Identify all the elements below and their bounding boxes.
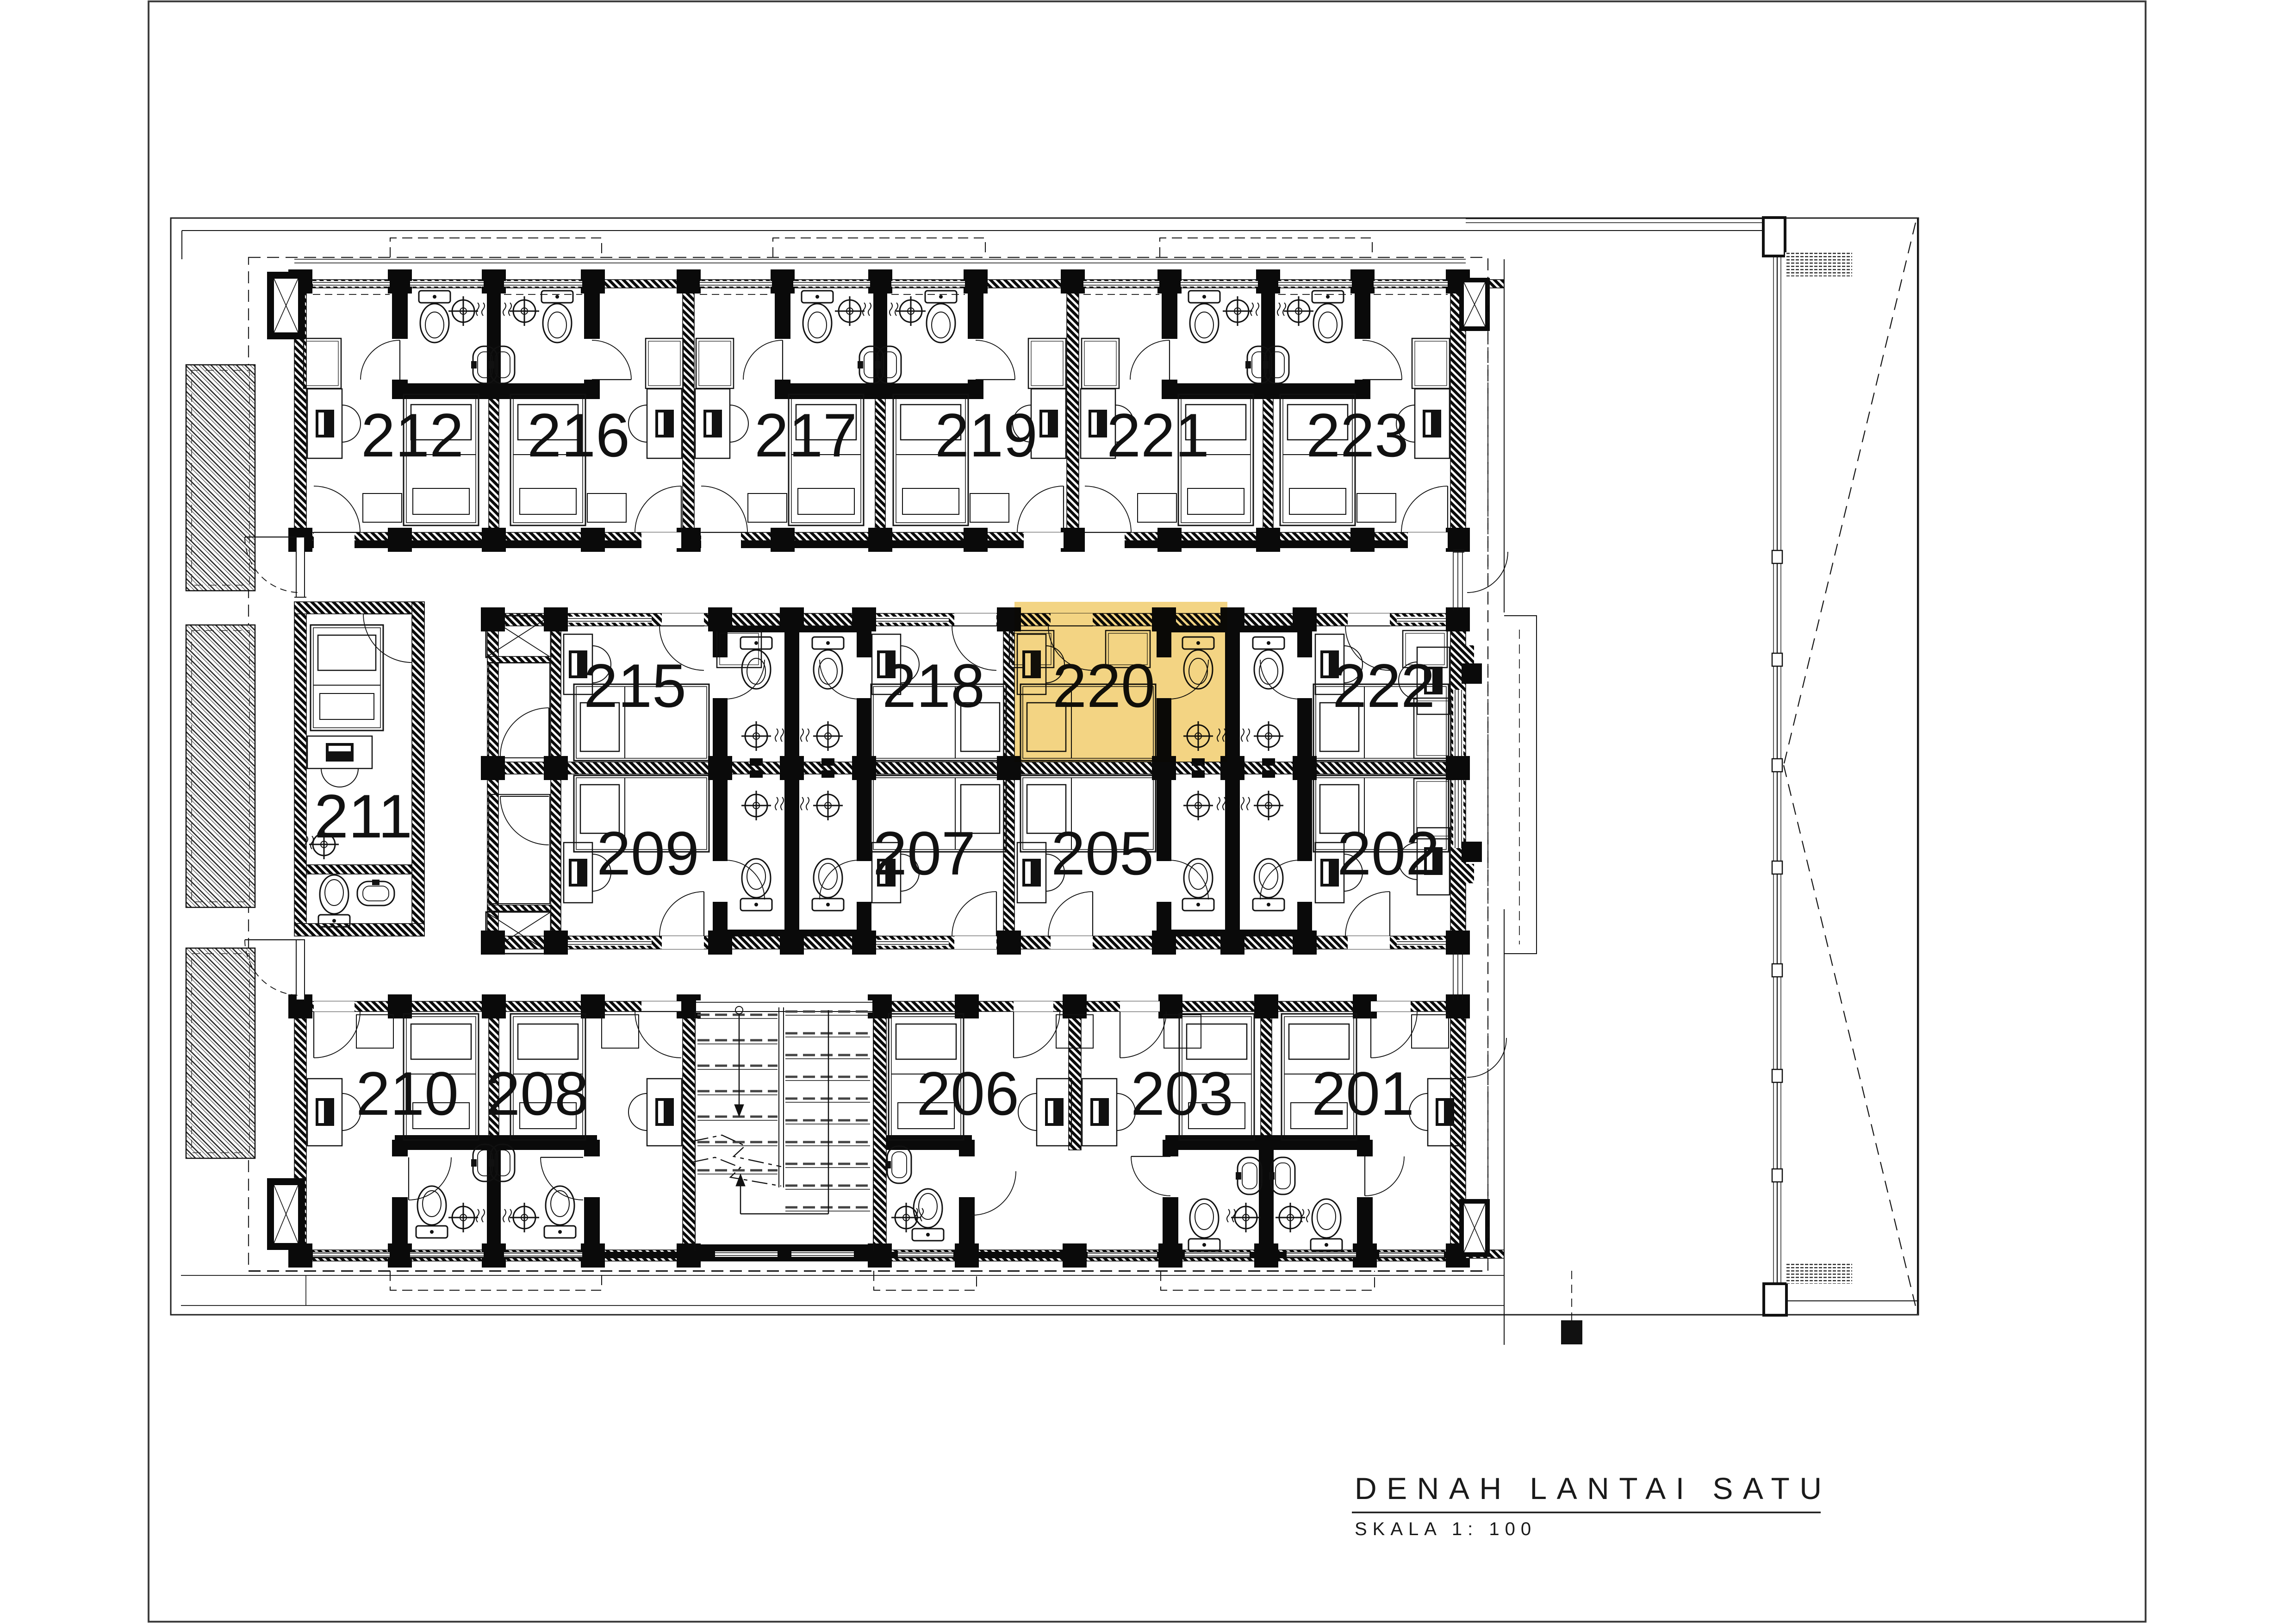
svg-text:DENAH LANTAI SATU: DENAH LANTAI SATU: [1355, 1471, 1832, 1505]
svg-text:202: 202: [1337, 819, 1440, 888]
svg-text:219: 219: [935, 401, 1038, 470]
svg-text:221: 221: [1107, 401, 1209, 470]
svg-text:215: 215: [584, 652, 686, 720]
svg-text:207: 207: [873, 819, 976, 888]
svg-text:203: 203: [1131, 1060, 1233, 1128]
svg-text:205: 205: [1051, 819, 1154, 888]
svg-text:206: 206: [916, 1060, 1019, 1128]
svg-text:216: 216: [527, 401, 630, 470]
svg-text:201: 201: [1312, 1060, 1414, 1128]
svg-text:208: 208: [486, 1060, 589, 1128]
svg-text:223: 223: [1306, 401, 1409, 470]
svg-text:209: 209: [597, 819, 699, 888]
svg-text:222: 222: [1332, 652, 1435, 720]
svg-text:218: 218: [882, 652, 985, 720]
svg-text:212: 212: [361, 401, 464, 470]
svg-text:211: 211: [314, 782, 412, 851]
svg-text:217: 217: [754, 401, 857, 470]
svg-text:SKALA 1: 100: SKALA 1: 100: [1355, 1519, 1537, 1539]
svg-text:210: 210: [356, 1060, 459, 1128]
